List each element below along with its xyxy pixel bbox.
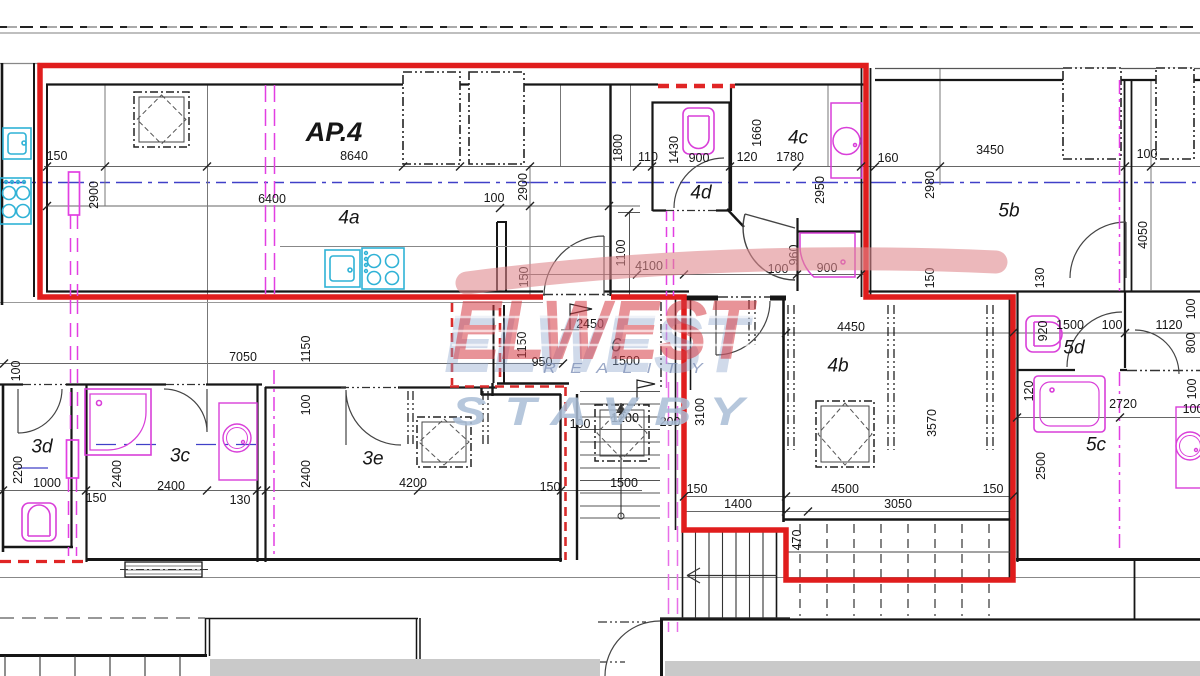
svg-text:5b: 5b [998,201,1019,222]
svg-text:2720: 2720 [1109,397,1137,411]
svg-text:100: 100 [1183,402,1200,416]
svg-text:120: 120 [1022,381,1036,402]
svg-text:120: 120 [737,150,758,164]
svg-text:4200: 4200 [399,476,427,490]
svg-text:4c: 4c [788,128,809,149]
svg-text:2900: 2900 [516,173,530,201]
svg-text:3450: 3450 [976,143,1004,157]
svg-text:2500: 2500 [1034,452,1048,480]
svg-text:130: 130 [1033,268,1047,289]
svg-text:160: 160 [878,151,899,165]
svg-text:4050: 4050 [1136,221,1150,249]
svg-text:1660: 1660 [750,119,764,147]
svg-text:4d: 4d [690,183,713,204]
svg-text:100: 100 [484,191,505,205]
svg-text:110: 110 [638,150,658,164]
svg-text:100: 100 [1137,147,1158,161]
svg-text:7050: 7050 [229,350,257,364]
svg-text:150: 150 [983,482,1004,496]
svg-text:1780: 1780 [776,150,804,164]
svg-text:5d: 5d [1063,338,1086,359]
svg-text:3e: 3e [362,449,383,470]
svg-text:800: 800 [1184,333,1198,354]
svg-text:1500: 1500 [1056,318,1084,332]
svg-text:6400: 6400 [258,192,286,206]
svg-text:2900: 2900 [87,181,101,209]
svg-text:2980: 2980 [923,171,937,199]
svg-text:4a: 4a [338,208,359,229]
svg-text:150: 150 [540,480,561,494]
svg-text:2200: 2200 [11,456,25,484]
svg-text:3570: 3570 [925,409,939,437]
svg-text:100: 100 [299,395,313,416]
svg-text:100: 100 [1102,318,1123,332]
svg-text:100: 100 [9,361,23,382]
svg-text:130: 130 [230,493,251,507]
svg-text:1430: 1430 [667,136,681,164]
svg-text:3d: 3d [31,437,54,458]
svg-text:150: 150 [86,491,107,505]
svg-text:2400: 2400 [157,479,185,493]
svg-text:AP.4: AP.4 [305,117,363,147]
svg-text:3c: 3c [170,446,191,467]
svg-text:1000: 1000 [33,476,61,490]
svg-text:5c: 5c [1086,435,1107,456]
svg-text:1500: 1500 [610,476,638,490]
svg-text:3050: 3050 [884,497,912,511]
svg-text:1400: 1400 [724,497,752,511]
svg-text:STAVBY: STAVBY [452,390,762,434]
svg-text:150: 150 [687,482,708,496]
svg-text:4500: 4500 [831,482,859,496]
svg-text:2400: 2400 [110,460,124,488]
svg-text:4b: 4b [827,356,848,377]
svg-text:920: 920 [1036,321,1050,342]
svg-text:4450: 4450 [837,320,865,334]
svg-text:1150: 1150 [299,336,313,363]
svg-text:1120: 1120 [1156,318,1183,332]
svg-text:100: 100 [1185,379,1199,400]
svg-text:8640: 8640 [340,149,368,163]
svg-text:REALITY: REALITY [543,360,717,377]
svg-text:2950: 2950 [813,176,827,204]
svg-text:900: 900 [689,151,710,165]
svg-text:150: 150 [47,149,68,163]
svg-text:470: 470 [790,530,804,551]
svg-text:2400: 2400 [299,460,313,488]
svg-text:1800: 1800 [611,134,625,162]
svg-text:100: 100 [1184,299,1198,320]
